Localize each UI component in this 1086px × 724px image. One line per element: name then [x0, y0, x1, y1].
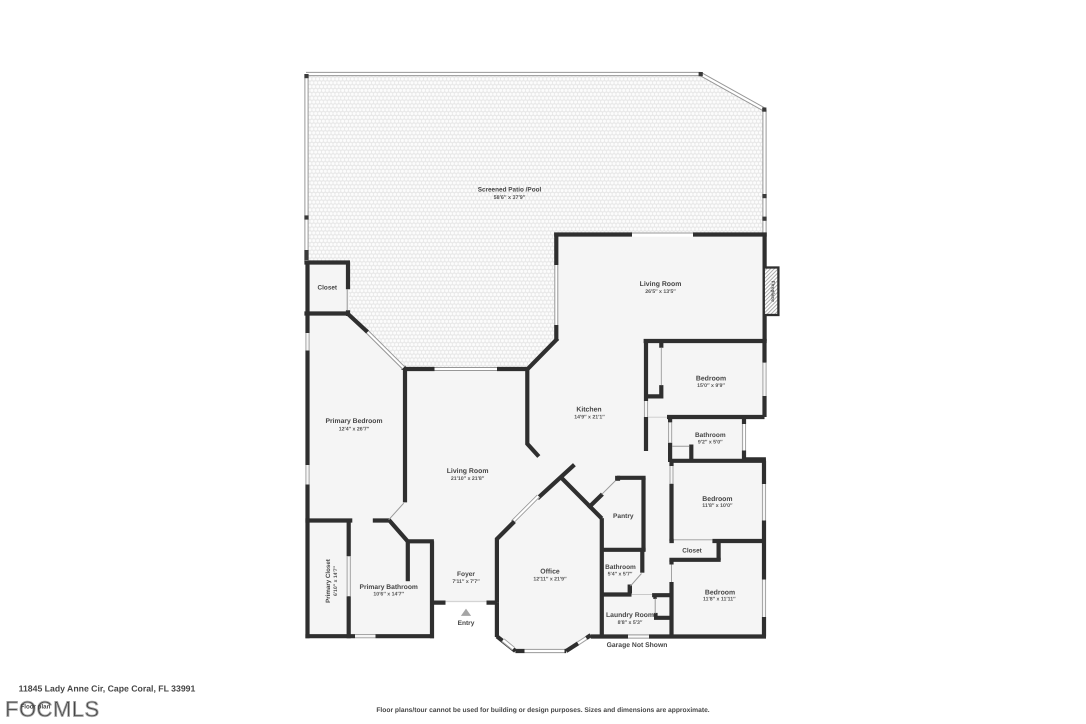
svg-text:Bedroom: Bedroom: [705, 589, 735, 596]
svg-text:Bathroom: Bathroom: [605, 564, 636, 571]
svg-text:Entry: Entry: [458, 620, 475, 627]
svg-text:Floor plan: Floor plan: [21, 704, 51, 711]
svg-text:21′10″ x 21′8″: 21′10″ x 21′8″: [451, 476, 485, 482]
svg-text:8′8″ x 5′3″: 8′8″ x 5′3″: [618, 620, 643, 626]
svg-text:12′4″ x 26′7″: 12′4″ x 26′7″: [339, 426, 370, 432]
svg-text:Primary Closet: Primary Closet: [325, 559, 332, 603]
svg-text:Floor plans/tour cannot be use: Floor plans/tour cannot be used for buil…: [376, 707, 709, 714]
svg-text:12′11″ x 21′9″: 12′11″ x 21′9″: [533, 577, 567, 583]
svg-text:Fireplace: Fireplace: [769, 281, 775, 302]
svg-text:Laundry Room: Laundry Room: [606, 612, 654, 619]
svg-text:Garage Not Shown: Garage Not Shown: [607, 642, 668, 649]
svg-text:9′2″ x 5′0″: 9′2″ x 5′0″: [698, 440, 723, 446]
svg-text:7′11″ x 7′7″: 7′11″ x 7′7″: [452, 579, 480, 585]
svg-text:11845 Lady Anne Cir, Cape Cora: 11845 Lady Anne Cir, Cape Coral, FL 3399…: [19, 684, 196, 694]
svg-text:Living Room: Living Room: [447, 468, 489, 475]
svg-text:Foyer: Foyer: [457, 571, 475, 578]
svg-text:Pantry: Pantry: [613, 513, 634, 520]
svg-text:26′5″ x 13′5″: 26′5″ x 13′5″: [645, 289, 676, 295]
svg-text:Living Room: Living Room: [640, 281, 682, 288]
svg-text:10′6″ x 14′7″: 10′6″ x 14′7″: [373, 592, 404, 598]
svg-text:Screened Patio /Pool: Screened Patio /Pool: [478, 186, 542, 193]
svg-text:5′4″ x 5′7″: 5′4″ x 5′7″: [608, 572, 633, 578]
svg-text:14′9″ x 21′1″: 14′9″ x 21′1″: [574, 415, 605, 421]
svg-text:6′10″ x 14′7″: 6′10″ x 14′7″: [333, 565, 339, 596]
svg-text:Bathroom: Bathroom: [695, 432, 726, 439]
svg-text:Kitchen: Kitchen: [576, 407, 601, 414]
svg-text:Closet: Closet: [318, 285, 338, 292]
svg-text:Bedroom: Bedroom: [702, 496, 732, 503]
svg-text:Bedroom: Bedroom: [696, 375, 726, 382]
svg-text:58′6″ x 37′9″: 58′6″ x 37′9″: [494, 195, 526, 201]
svg-text:15′0″ x 9′9″: 15′0″ x 9′9″: [697, 383, 725, 389]
svg-text:Closet: Closet: [682, 547, 702, 554]
svg-text:Primary Bedroom: Primary Bedroom: [325, 418, 382, 425]
svg-text:Office: Office: [540, 568, 560, 575]
svg-text:FOCMLS: FOCMLS: [5, 697, 100, 722]
svg-text:11′8″ x 10′0″: 11′8″ x 10′0″: [702, 503, 733, 509]
svg-text:11′8″ x 11′11″: 11′8″ x 11′11″: [703, 597, 736, 603]
svg-text:Primary Bathroom: Primary Bathroom: [360, 584, 418, 591]
